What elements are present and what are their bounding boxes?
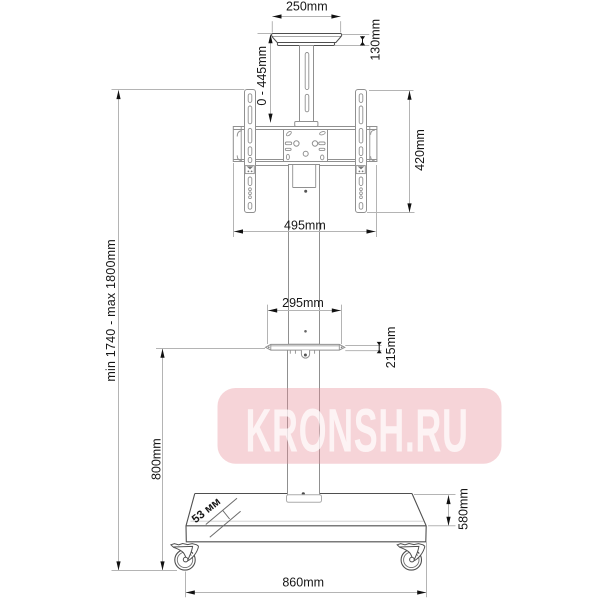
svg-text:KRONSH.RU: KRONSH.RU (245, 395, 468, 465)
svg-text:130mm: 130mm (369, 19, 383, 61)
svg-text:800mm: 800mm (149, 438, 163, 480)
svg-text:495mm: 495mm (284, 218, 326, 232)
svg-text:215mm: 215mm (384, 327, 398, 369)
svg-text:860mm: 860mm (282, 576, 324, 590)
svg-text:580mm: 580mm (457, 488, 471, 530)
svg-text:min 1740 - max 1800mm: min 1740 - max 1800mm (104, 239, 118, 381)
svg-text:250mm: 250mm (286, 0, 328, 14)
svg-text:295mm: 295mm (282, 296, 324, 310)
svg-text:0 - 445mm: 0 - 445mm (255, 46, 269, 106)
svg-text:420mm: 420mm (413, 129, 427, 171)
